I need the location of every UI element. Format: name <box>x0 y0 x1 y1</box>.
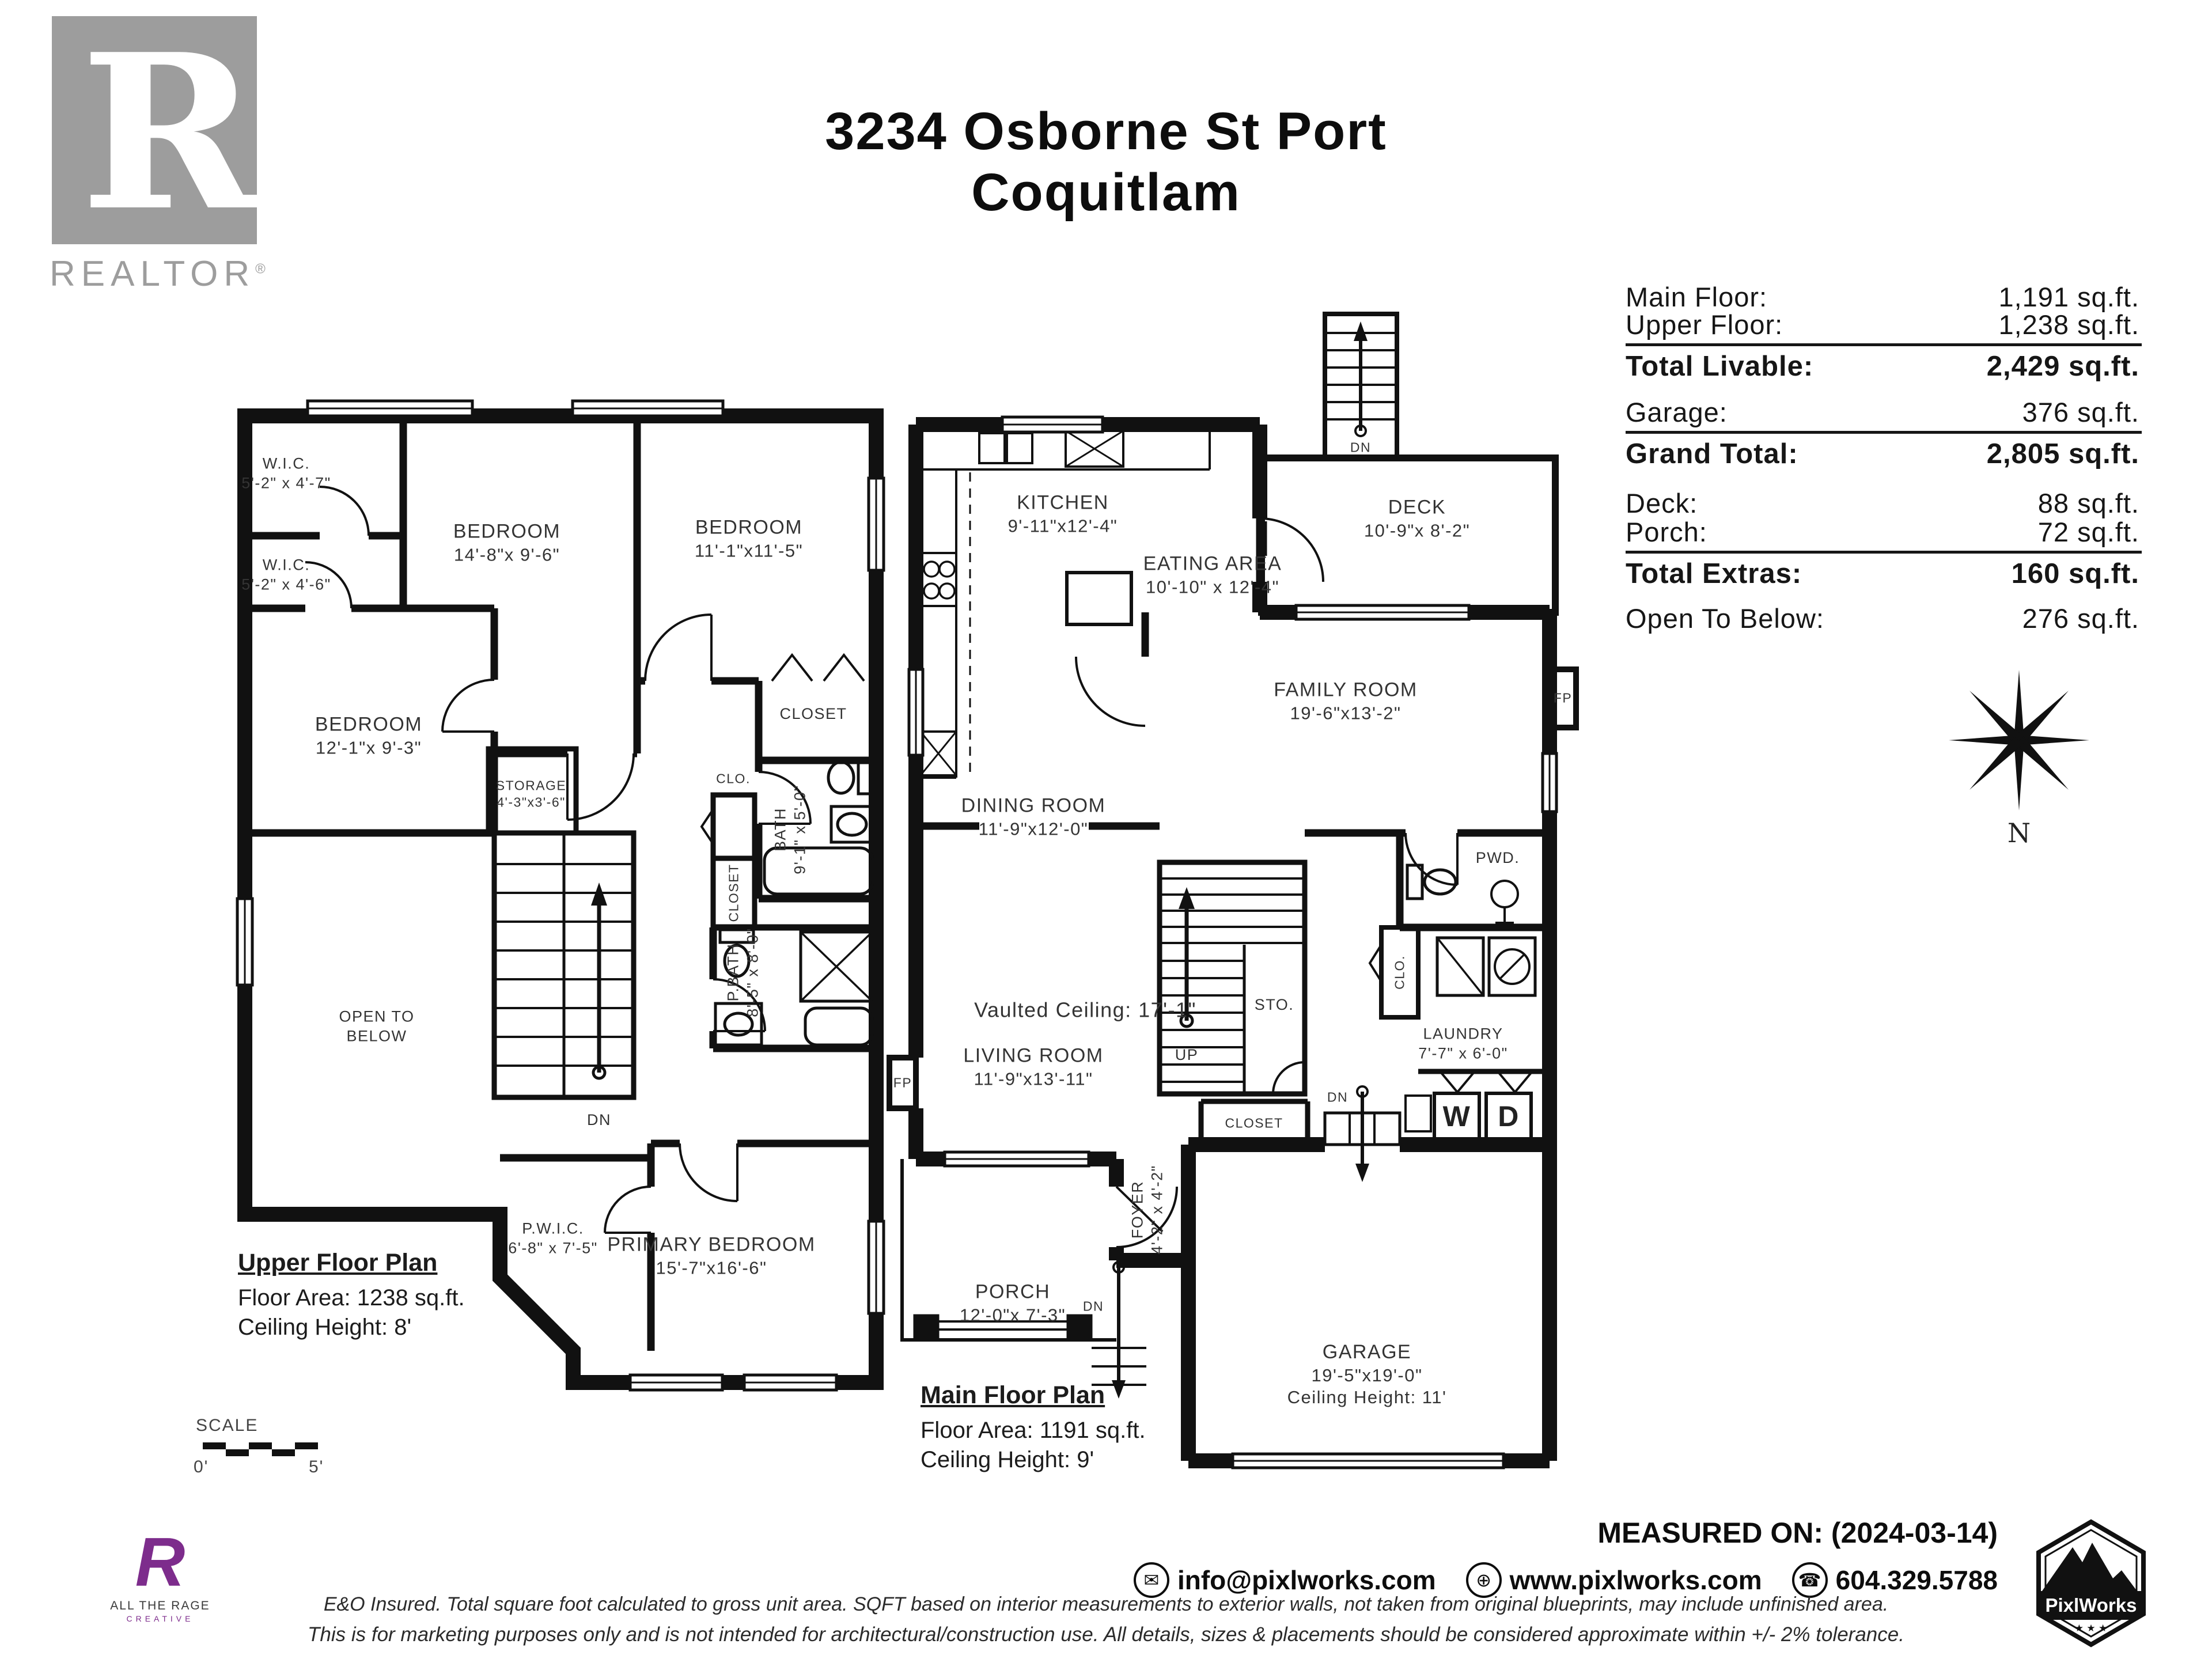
phone-item: ☎604.329.5788 <box>1792 1562 1998 1598</box>
atr-name: ALL THE RAGE <box>97 1599 224 1613</box>
fireplace-label-right: FP <box>1554 690 1572 707</box>
upper-stairs <box>494 833 634 1097</box>
room-label-foyer: FOYER4'-2" x 4'-2" <box>1128 1165 1167 1255</box>
dryer-letter: D <box>1498 1099 1520 1135</box>
stairs-up-label: UP <box>1175 1046 1199 1065</box>
laundry-pwd-fixtures <box>1325 865 1535 1182</box>
main-plan-title-block: Main Floor Plan Floor Area: 1191 sq.ft. … <box>921 1381 1146 1473</box>
website-item: ⊕www.pixlworks.com <box>1466 1562 1762 1598</box>
all-the-rage-logo: R ALL THE RAGE CREATIVE <box>97 1528 224 1623</box>
table-row-porch: Porch:72 sq.ft. <box>1626 516 2139 548</box>
realtor-wordmark: REALTOR® <box>50 253 271 294</box>
table-row-deck: Deck:88 sq.ft. <box>1626 487 2139 519</box>
table-row-garage: Garage:376 sq.ft. <box>1626 396 2139 428</box>
room-label-clo-upper: CLO. <box>716 771 751 787</box>
disclaimer-line2: This is for marketing purposes only and … <box>0 1623 2212 1646</box>
room-label-clo-main: CLO. <box>1392 955 1408 990</box>
room-label-pwic: P.W.I.C.6'-8" x 7'-5" <box>508 1219 598 1258</box>
room-label-family-room: FAMILY ROOM19'-6"x13'-2" <box>1274 677 1418 724</box>
website-text: www.pixlworks.com <box>1510 1565 1762 1596</box>
room-label-bedroom-mid: BEDROOM14'-8"x 9'-6" <box>453 519 560 566</box>
room-label-dining-room: DINING ROOM11'-9"x12'-0" <box>961 793 1106 840</box>
atr-mark-icon: R <box>97 1528 224 1597</box>
scale-start: 0' <box>194 1457 209 1477</box>
room-label-garage: GARAGE19'-5"x19'-0"Ceiling Height: 11' <box>1287 1340 1447 1409</box>
room-label-deck: DECK10'-9"x 8'-2" <box>1364 495 1470 541</box>
table-divider <box>1626 431 2142 434</box>
upper-closet-boxes <box>488 749 755 927</box>
email-text: info@pixlworks.com <box>1177 1565 1436 1596</box>
washer-letter: W <box>1443 1099 1471 1135</box>
room-label-kitchen: KITCHEN9'-11"x12'-4" <box>1008 490 1118 537</box>
porch <box>902 1159 1146 1399</box>
phone-text: 604.329.5788 <box>1836 1565 1998 1596</box>
room-label-closet-hall: CLOSET <box>726 863 743 922</box>
deck <box>1257 314 1555 612</box>
room-label-powder: PWD. <box>1476 849 1520 868</box>
room-label-storage-main: STO. <box>1255 995 1294 1015</box>
table-row-total-livable: Total Livable:2,429 sq.ft. <box>1626 350 2139 382</box>
room-label-foyer-closet: CLOSET <box>1225 1115 1283 1132</box>
table-row-upper-floor: Upper Floor:1,238 sq.ft. <box>1626 309 2139 340</box>
phone-icon: ☎ <box>1792 1562 1828 1598</box>
room-label-living-room: LIVING ROOM11'-9"x13'-11" <box>963 1043 1103 1090</box>
room-label-laundry: LAUNDRY7'-7" x 6'-0" <box>1418 1024 1508 1063</box>
contact-row: ✉info@pixlworks.com ⊕www.pixlworks.com ☎… <box>1134 1562 1998 1598</box>
room-label-wic2: W.I.C.5'-2" x 4'-6" <box>241 555 331 594</box>
garage-dn-label: DN <box>1327 1089 1348 1106</box>
scale-end: 5' <box>309 1457 324 1477</box>
room-label-porch: PORCH12'-0"x 7'-3" <box>960 1279 1066 1326</box>
table-divider <box>1626 551 2142 554</box>
upper-plan-title-block: Upper Floor Plan Floor Area: 1238 sq.ft.… <box>238 1249 465 1340</box>
kitchen-fixtures <box>916 425 1210 778</box>
table-row-main-floor: Main Floor:1,191 sq.ft. <box>1626 281 2139 313</box>
room-label-primary-bedroom: PRIMARY BEDROOM15'-7"x16'-6" <box>607 1232 815 1279</box>
property-address-line1: 3234 Osborne St Port <box>0 101 2212 162</box>
table-divider <box>1626 343 2142 346</box>
room-label-wic1: W.I.C.5'-2" x 4'-7" <box>241 454 331 493</box>
table-row-open-to-below: Open To Below:276 sq.ft. <box>1626 603 2139 634</box>
table-row-grand-total: Grand Total:2,805 sq.ft. <box>1626 438 2139 470</box>
compass-icon <box>1949 670 2089 810</box>
disclaimer-line1: E&O Insured. Total square foot calculate… <box>0 1593 2212 1616</box>
email-item: ✉info@pixlworks.com <box>1134 1562 1436 1598</box>
room-label-bedroom-right: BEDROOM11'-1"x11'-5" <box>695 515 803 562</box>
vaulted-ceiling-note: Vaulted Ceiling: 17'-1" <box>974 997 1196 1023</box>
compass-north-label: N <box>2008 817 2031 849</box>
deck-dn-label: DN <box>1350 440 1371 456</box>
scale-bar <box>203 1442 318 1456</box>
room-label-bath: BATH9'-1" x 5'-0" <box>771 785 810 874</box>
email-icon: ✉ <box>1134 1562 1169 1598</box>
room-label-closet-upper: CLOSET <box>779 704 847 724</box>
atr-tagline: CREATIVE <box>97 1614 224 1623</box>
globe-icon: ⊕ <box>1466 1562 1502 1598</box>
property-address-line2: Coquitlam <box>0 162 2212 223</box>
room-label-open-to-below: OPEN TOBELOW <box>339 1007 414 1046</box>
room-label-eating-area: EATING AREA10'-10" x 12'-4" <box>1143 551 1282 598</box>
fireplace-label-left: FP <box>893 1075 912 1092</box>
porch-dn-label: DN <box>1083 1298 1104 1315</box>
measured-on: MEASURED ON: (2024-03-14) <box>1597 1516 1998 1550</box>
scale-title: SCALE <box>196 1416 258 1435</box>
table-row-total-extras: Total Extras:160 sq.ft. <box>1626 558 2139 590</box>
room-label-pbath: P.BATH8'-5" x 8'-0" <box>724 927 763 1017</box>
stairs-dn-label-upper: DN <box>587 1111 611 1130</box>
room-label-bedroom3: BEDROOM12'-1"x 9'-3" <box>315 712 422 759</box>
room-label-storage: STORAGE4'-3"x3'-6" <box>496 777 567 810</box>
floor-plan-page: R <box>0 0 2212 1659</box>
